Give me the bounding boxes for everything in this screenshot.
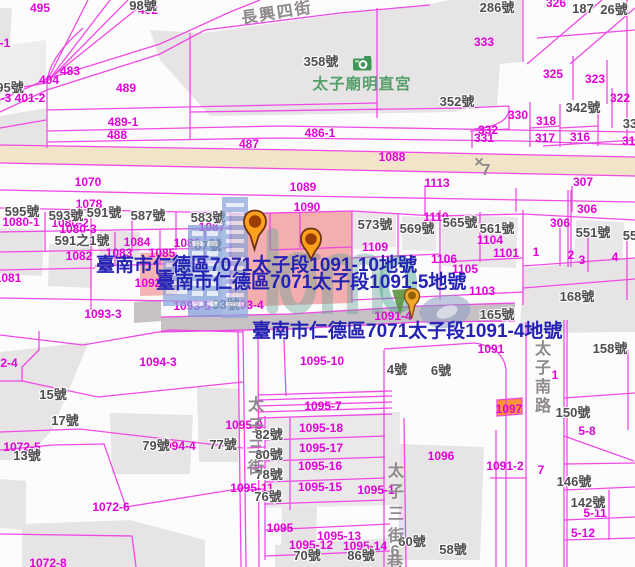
svg-text:495: 495 (30, 1, 50, 15)
svg-text:1: 1 (533, 245, 540, 259)
svg-text:306: 306 (577, 202, 597, 216)
svg-text:4號: 4號 (387, 362, 407, 377)
svg-text:561號: 561號 (480, 221, 515, 236)
svg-text:587號: 587號 (131, 208, 166, 223)
svg-text:569號: 569號 (400, 221, 435, 236)
svg-text:142號: 142號 (571, 495, 606, 510)
svg-text:316: 316 (570, 130, 590, 144)
svg-text:1095-18: 1095-18 (299, 421, 343, 435)
svg-text:1095-7: 1095-7 (304, 399, 342, 413)
svg-text:55: 55 (623, 228, 635, 243)
svg-text:26號: 26號 (600, 2, 627, 17)
svg-text:488: 488 (107, 128, 127, 142)
svg-text:1091: 1091 (478, 342, 505, 356)
svg-text:593號: 593號 (49, 208, 84, 223)
svg-text:太: 太 (247, 395, 265, 414)
svg-text:70號: 70號 (293, 548, 320, 563)
svg-text:1097: 1097 (496, 402, 523, 416)
svg-text:95號: 95號 (0, 80, 24, 95)
svg-text:187: 187 (572, 1, 594, 16)
svg-text:150號: 150號 (556, 405, 591, 420)
svg-text:1072-8: 1072-8 (29, 556, 67, 567)
svg-text:1081: 1081 (0, 271, 22, 285)
svg-text:326: 326 (546, 0, 566, 10)
svg-text:322: 322 (610, 91, 630, 105)
svg-text:1096: 1096 (428, 449, 455, 463)
svg-text:306: 306 (550, 216, 570, 230)
svg-text:1095-17: 1095-17 (299, 441, 343, 455)
svg-text:323: 323 (585, 72, 605, 86)
svg-text:1109: 1109 (362, 240, 388, 254)
svg-text:76號: 76號 (254, 489, 281, 504)
svg-text:子: 子 (535, 359, 551, 377)
svg-text:1095: 1095 (267, 521, 294, 535)
svg-text:太子廟明直宮: 太子廟明直宮 (312, 74, 411, 93)
svg-text:489-1: 489-1 (108, 115, 139, 129)
svg-text:5-8: 5-8 (578, 424, 596, 438)
svg-text:三: 三 (388, 506, 404, 523)
svg-text:33: 33 (623, 116, 635, 131)
svg-text:1103: 1103 (469, 284, 495, 298)
svg-text:2: 2 (568, 248, 575, 262)
svg-text:7: 7 (538, 463, 545, 477)
svg-text:太: 太 (387, 461, 405, 480)
svg-text:573號: 573號 (358, 217, 393, 232)
svg-text:352號: 352號 (440, 94, 475, 109)
svg-text:1070: 1070 (75, 175, 102, 189)
svg-text:1091-2: 1091-2 (486, 459, 524, 473)
svg-text:巷: 巷 (386, 552, 404, 567)
svg-text:街: 街 (247, 458, 264, 477)
svg-text:6號: 6號 (431, 363, 451, 378)
svg-text:1072-6: 1072-6 (92, 500, 130, 514)
svg-text:79號: 79號 (142, 438, 169, 453)
svg-text:1113: 1113 (424, 176, 450, 190)
svg-text:483: 483 (60, 64, 80, 78)
svg-text:臺南市仁德區7071太子段1091-4地號: 臺南市仁德區7071太子段1091-4地號 (252, 319, 562, 342)
svg-text:13號: 13號 (13, 448, 40, 463)
svg-text:330: 330 (508, 108, 528, 122)
svg-text:342號: 342號 (566, 100, 601, 115)
svg-text:168號: 168號 (560, 289, 595, 304)
svg-text:3: 3 (579, 253, 586, 267)
svg-text:325: 325 (543, 67, 563, 81)
svg-text:595號: 595號 (5, 204, 40, 219)
svg-text:591之1號: 591之1號 (55, 233, 110, 248)
svg-text:404: 404 (39, 73, 59, 87)
svg-text:2-4: 2-4 (0, 356, 18, 370)
svg-text:86號: 86號 (347, 548, 374, 563)
svg-text:1095-15: 1095-15 (298, 480, 342, 494)
svg-text:三: 三 (248, 439, 264, 456)
svg-text:路: 路 (535, 396, 552, 415)
svg-text:158號: 158號 (593, 341, 628, 356)
svg-text:-1: -1 (0, 36, 11, 50)
svg-text:331: 331 (474, 131, 494, 145)
svg-text:77號: 77號 (209, 437, 236, 452)
svg-text:307: 307 (573, 175, 593, 189)
svg-text:1101: 1101 (493, 246, 519, 260)
svg-text:4: 4 (612, 250, 619, 264)
svg-text:551號: 551號 (576, 225, 611, 240)
svg-text:486-1: 486-1 (305, 126, 336, 140)
svg-text:臺南市仁德區7071太子段1091-5地號: 臺南市仁德區7071太子段1091-5地號 (156, 270, 466, 293)
svg-text:1: 1 (552, 368, 559, 382)
svg-text:358號: 358號 (304, 54, 339, 69)
svg-text:15號: 15號 (39, 387, 66, 402)
svg-text:1090: 1090 (294, 200, 321, 214)
svg-text:317: 317 (535, 131, 555, 145)
svg-text:312: 312 (622, 134, 635, 148)
svg-text:146號: 146號 (557, 474, 592, 489)
svg-text:子: 子 (388, 483, 404, 501)
svg-text:1082: 1082 (66, 249, 93, 263)
svg-text:17號: 17號 (51, 413, 78, 428)
svg-text:583號: 583號 (191, 210, 226, 225)
svg-text:318: 318 (536, 114, 556, 128)
svg-text:1089: 1089 (290, 180, 317, 194)
svg-text:1088: 1088 (379, 150, 406, 164)
svg-text:489: 489 (116, 81, 136, 95)
svg-text:333: 333 (474, 35, 494, 49)
svg-text:5-12: 5-12 (571, 526, 595, 540)
svg-text:1095-16: 1095-16 (298, 459, 342, 473)
svg-text:1094-3: 1094-3 (139, 355, 177, 369)
svg-text:7: 7 (482, 162, 491, 179)
svg-text:子: 子 (248, 417, 264, 435)
svg-text:487: 487 (239, 137, 259, 151)
svg-text:1095-10: 1095-10 (300, 354, 344, 368)
svg-text:58號: 58號 (439, 542, 466, 557)
svg-text:98號: 98號 (129, 0, 156, 13)
svg-text:1093-3: 1093-3 (84, 307, 122, 321)
svg-text:286號: 286號 (480, 0, 515, 15)
svg-text:南: 南 (535, 377, 551, 396)
svg-text:591號: 591號 (87, 205, 122, 220)
svg-text:565號: 565號 (443, 215, 478, 230)
svg-text:165號: 165號 (480, 307, 515, 322)
